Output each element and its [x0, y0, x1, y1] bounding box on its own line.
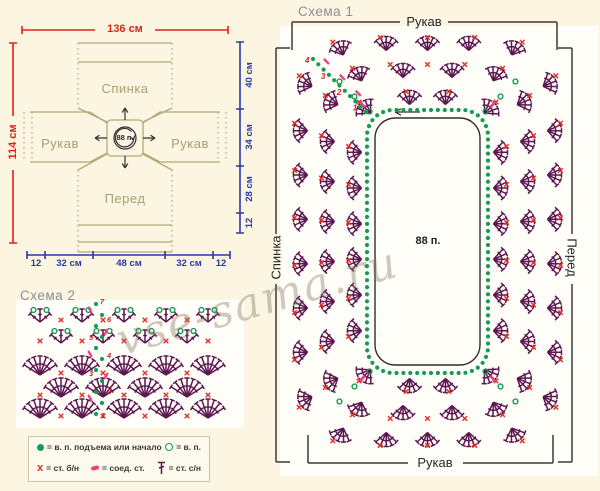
schematic-sleeve-left-label: Рукав: [25, 136, 95, 151]
chain-icon: [165, 443, 173, 451]
svg-text:6: 6: [107, 315, 112, 324]
measure-bottom-4: 12: [203, 258, 239, 270]
measure-bottom-2: 48 см: [111, 258, 147, 270]
single-crochet-icon: x: [37, 464, 43, 472]
chart1-top-label: Рукав: [400, 14, 448, 29]
chart1-center-stitches: 88 п.: [402, 235, 454, 247]
measure-top: 136 см: [98, 23, 152, 35]
measure-bottom-0: 12: [18, 258, 54, 270]
measure-right-0: 40 см: [244, 53, 256, 97]
legend-chain-start: = в. п. подъема или начало: [37, 442, 162, 452]
measure-left: 114 см: [7, 115, 19, 169]
legend-chain-start-label: = в. п. подъема или начало: [47, 442, 162, 452]
stitch-legend: = в. п. подъема или начало = в. п. x = с…: [28, 436, 210, 482]
svg-text:3: 3: [321, 72, 326, 81]
chart2: 1234567: [16, 296, 248, 430]
legend-row-2: x = ст. б/н = соед. ст. = ст. с/н: [37, 460, 201, 476]
chart1-left-label: Спинка: [269, 228, 284, 288]
legend-double-crochet: = ст. с/н: [157, 460, 201, 476]
legend-row-1: = в. п. подъема или начало = в. п.: [37, 442, 201, 452]
chart2-stitches: 1234567: [23, 297, 226, 420]
chart1: 1234: [268, 12, 600, 482]
schematic-front-label: Перед: [85, 191, 165, 206]
svg-text:4: 4: [304, 56, 310, 65]
legend-single-crochet-label: = ст. б/н: [46, 463, 79, 473]
svg-text:4: 4: [106, 351, 112, 360]
svg-text:3: 3: [89, 369, 94, 378]
chart1-bottom-label: Рукав: [406, 455, 464, 470]
schematic-center-stitches: 88 п.: [108, 133, 142, 142]
measure-bottom-3: 32 см: [171, 258, 207, 270]
svg-text:1: 1: [353, 104, 358, 113]
legend-single-crochet: x = ст. б/н: [37, 463, 79, 473]
svg-text:7: 7: [100, 297, 105, 306]
schematic-sleeve-right-label: Рукав: [155, 136, 225, 151]
garment-schematic: [0, 20, 262, 285]
measure-right-1: 34 см: [244, 115, 256, 159]
measure-right-3: 12: [244, 201, 256, 245]
chart1-right-label: Перед: [565, 228, 580, 288]
legend-slip-stitch: = соед. ст.: [91, 463, 145, 473]
chain-start-icon: [37, 444, 44, 451]
svg-text:2: 2: [106, 387, 112, 396]
legend-chain-label: = в. п.: [176, 442, 201, 452]
slip-stitch-icon: [91, 465, 100, 470]
measure-bottom-1: 32 см: [51, 258, 87, 270]
crochet-pattern-page: Спинка Рукав Рукав Перед 88 п. 136 см 11…: [0, 0, 600, 491]
legend-slip-stitch-label: = соед. ст.: [102, 463, 145, 473]
schematic-back-label: Спинка: [85, 81, 165, 96]
legend-chain: = в. п.: [165, 442, 201, 452]
svg-text:2: 2: [336, 88, 342, 97]
double-crochet-icon: [157, 460, 166, 476]
svg-text:1: 1: [101, 411, 105, 420]
legend-double-crochet-label: = ст. с/н: [169, 463, 201, 473]
